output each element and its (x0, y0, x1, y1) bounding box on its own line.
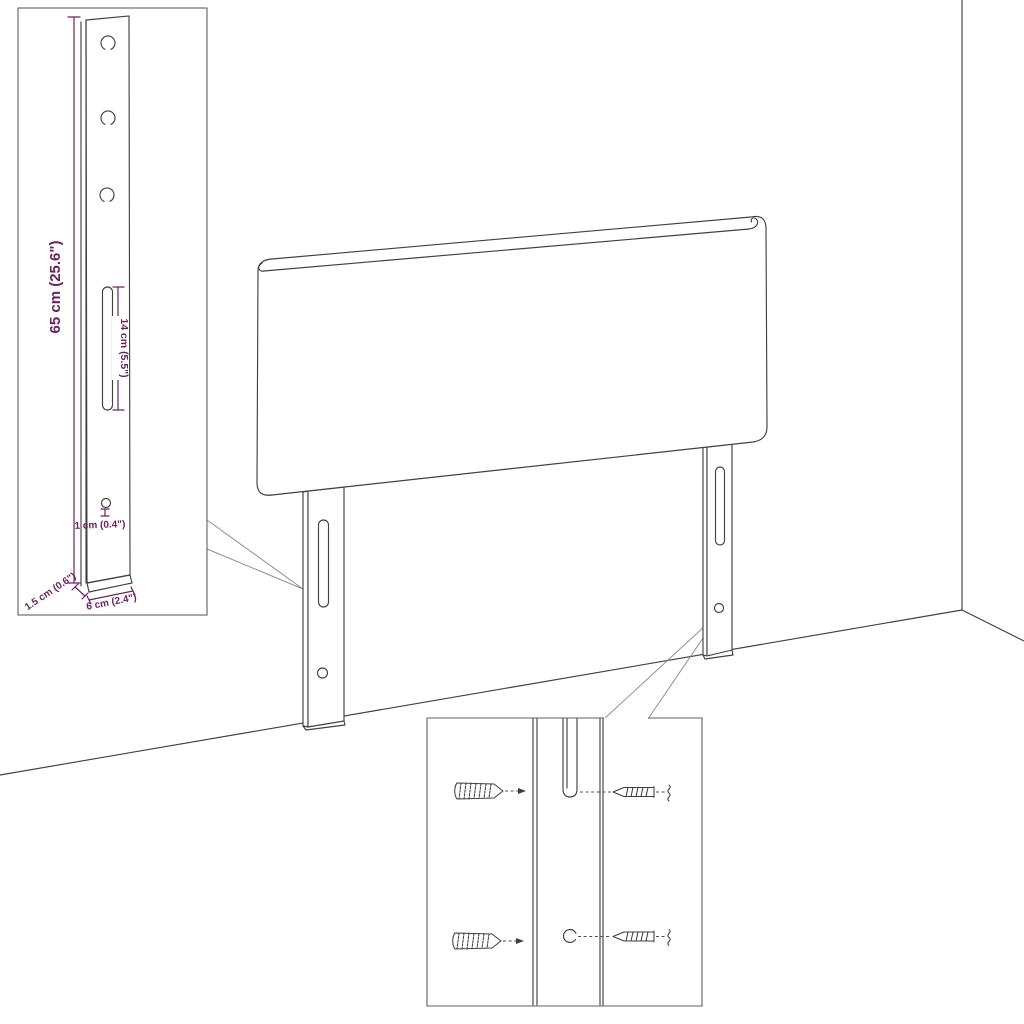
screw-detail-view (427, 718, 702, 1006)
bracket-detail-view: 65 cm (25.6") 14 cm (5.5") 1 cm (0.4") 1… (18, 8, 207, 615)
headboard-panel (257, 216, 767, 495)
dimension-label-hole-size: 1 cm (0.4") (74, 519, 125, 532)
bracket-callout-lines (207, 520, 303, 589)
diagram-canvas: 65 cm (25.6") 14 cm (5.5") 1 cm (0.4") 1… (0, 0, 1024, 1024)
panel-outline (257, 216, 767, 495)
headboard-drawing (257, 216, 767, 730)
screw-detail-frame (427, 718, 702, 1006)
headboard-left-leg (303, 487, 345, 730)
headboard-assembly-diagram: 65 cm (25.6") 14 cm (5.5") 1 cm (0.4") 1… (0, 0, 1024, 1024)
headboard-right-leg (703, 444, 733, 659)
floor-line-right (962, 610, 1024, 641)
dimension-label-bracket-height: 65 cm (25.6") (47, 240, 64, 333)
dimension-label-slot-length: 14 cm (5.5") (118, 318, 130, 377)
right-leg-side-face (703, 447, 707, 656)
right-leg-front-face (707, 444, 732, 656)
left-leg-side-face (303, 491, 308, 727)
